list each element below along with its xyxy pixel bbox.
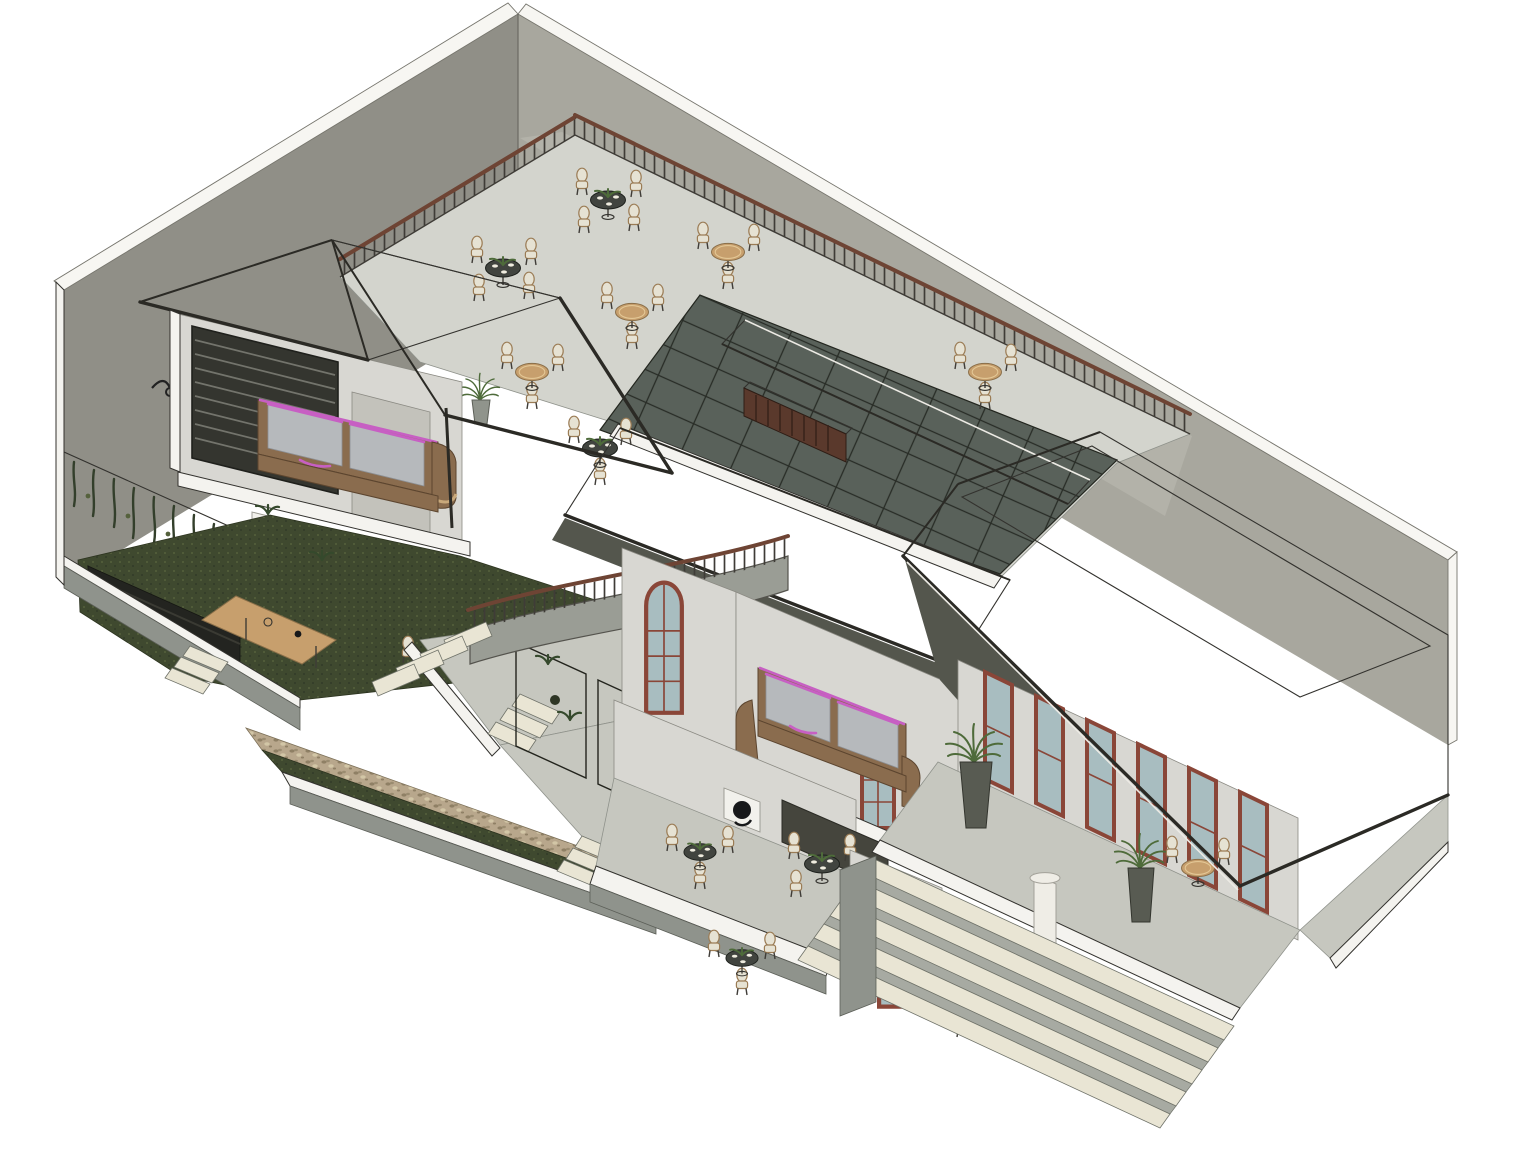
right-floor-strip [1300, 795, 1448, 958]
section-cut-edge [170, 310, 180, 472]
arched-window [646, 583, 682, 713]
isometric-building-render [0, 0, 1524, 1169]
render-viewport [0, 0, 1524, 1169]
step-side-block [840, 856, 876, 1016]
left-wall-outer-edge [56, 282, 64, 585]
right-wall-end-cap [1448, 552, 1457, 745]
